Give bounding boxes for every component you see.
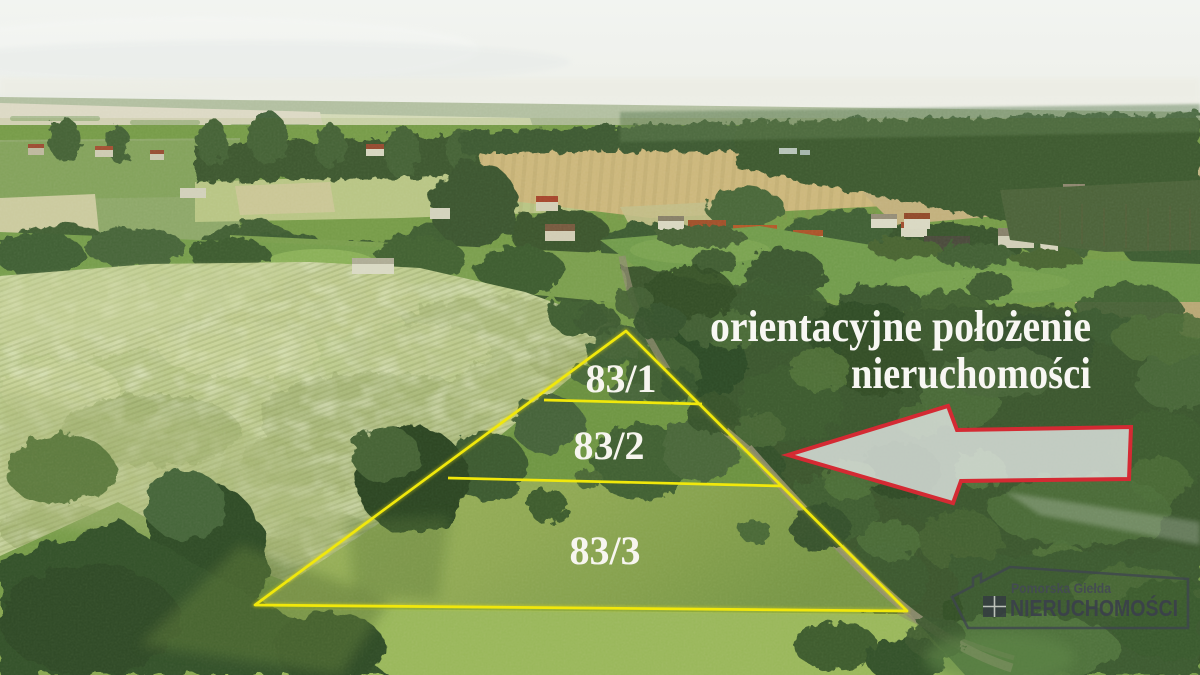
- svg-text:nieruchomości: nieruchomości: [851, 349, 1091, 398]
- svg-text:83/1: 83/1: [585, 356, 656, 401]
- svg-text:83/3: 83/3: [569, 528, 640, 573]
- svg-text:orientacyjne położenie: orientacyjne położenie: [710, 302, 1091, 351]
- svg-text:NIERUCHOMOŚCI: NIERUCHOMOŚCI: [1010, 594, 1178, 621]
- svg-text:Pomorska Giełda: Pomorska Giełda: [1011, 581, 1111, 596]
- svg-text:83/2: 83/2: [573, 423, 644, 468]
